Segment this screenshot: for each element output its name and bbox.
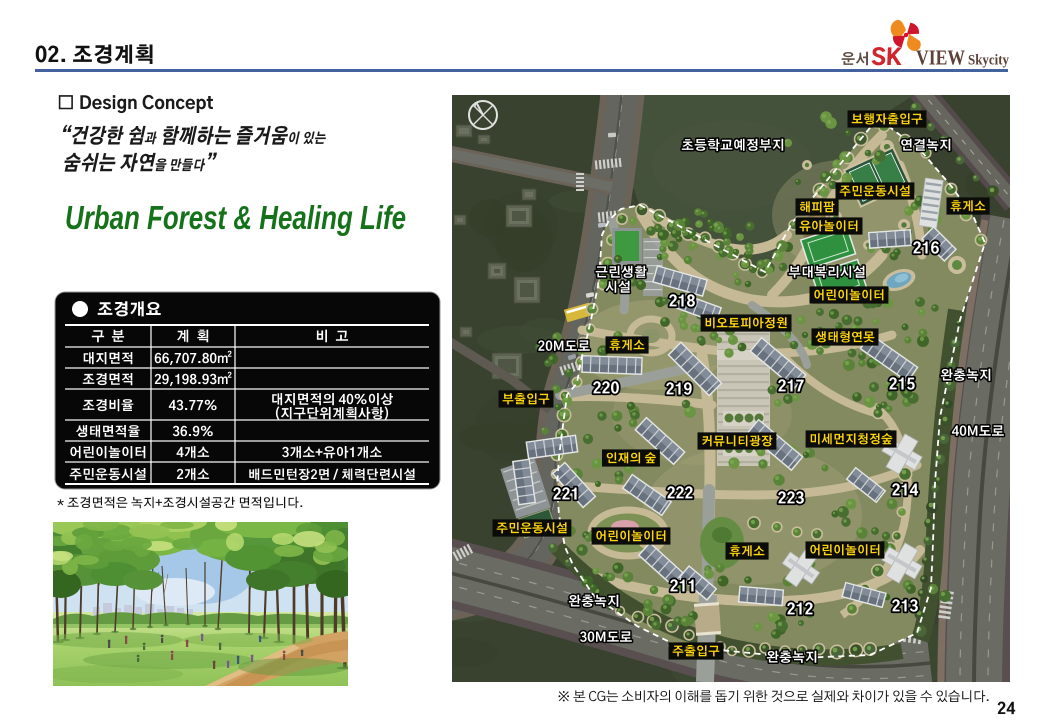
svg-text:Urban Forest & Healing Life: Urban Forest & Healing Life <box>65 199 406 236</box>
svg-text:Skycity: Skycity <box>968 53 1009 69</box>
svg-text:VIEW: VIEW <box>916 46 965 70</box>
